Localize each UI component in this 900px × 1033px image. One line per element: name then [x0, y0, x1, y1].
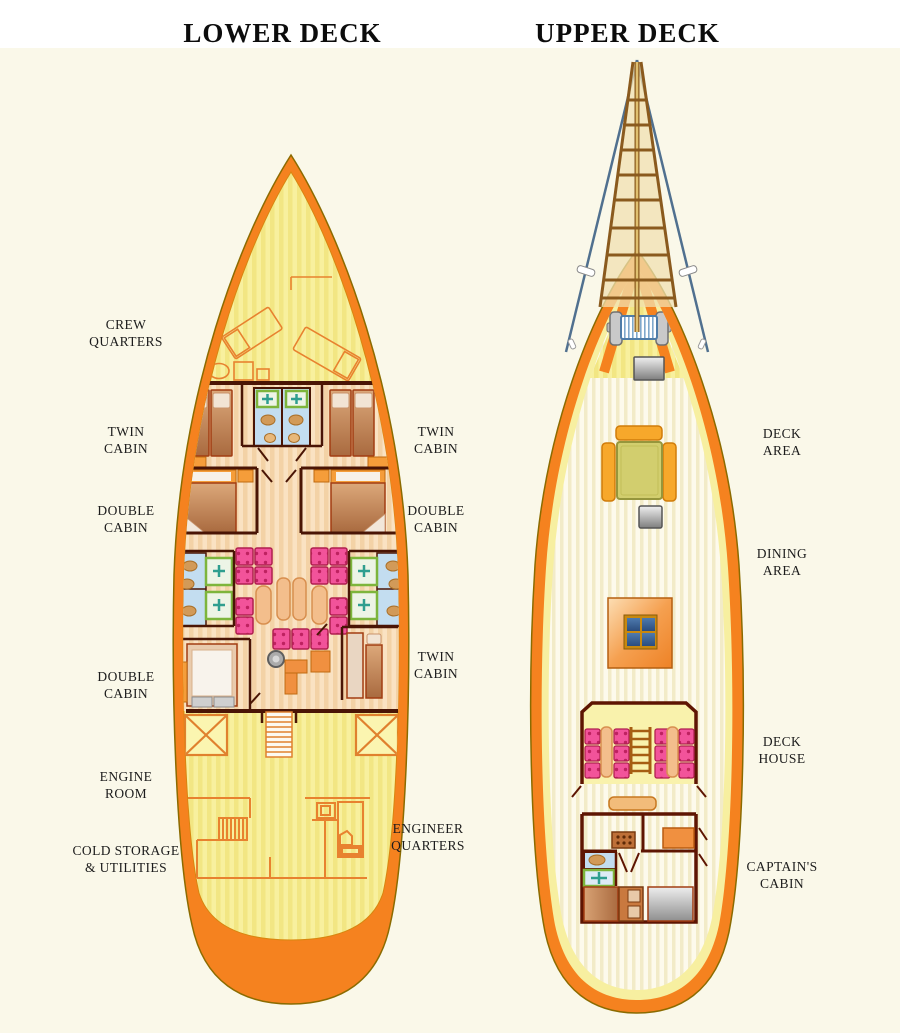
label-line: DECK	[702, 425, 862, 442]
label-line: ROOM	[51, 785, 201, 802]
title-upper-deck: UPPER DECK	[505, 18, 750, 49]
label-line: CREW	[51, 316, 201, 333]
skylight-window	[608, 598, 672, 668]
label-line: AREA	[702, 442, 862, 459]
lower-deck-plan	[170, 155, 415, 1004]
label-line: ENGINEER	[353, 820, 503, 837]
label-line: CABIN	[361, 519, 511, 536]
deck-house	[572, 703, 706, 797]
label-double-cabin-port: DOUBLE CABIN	[51, 502, 201, 536]
label-deck-house: DECK HOUSE	[702, 733, 862, 767]
label-dining-area: DINING AREA	[702, 545, 862, 579]
captain-bed	[584, 887, 618, 921]
label-line: CAPTAIN'S	[702, 858, 862, 875]
label-line: COLD STORAGE	[46, 842, 206, 859]
label-crew-quarters: CREW QUARTERS	[51, 316, 201, 350]
label-line: HOUSE	[702, 750, 862, 767]
label-deck-area: DECK AREA	[702, 425, 862, 459]
label-line: DINING	[702, 545, 862, 562]
label-line: DOUBLE	[361, 502, 511, 519]
bathroom-block	[254, 388, 310, 446]
label-double-cabin-aft-port: DOUBLE CABIN	[51, 668, 201, 702]
title-lower-deck: LOWER DECK	[160, 18, 405, 49]
label-line: DECK	[702, 733, 862, 750]
label-line: DOUBLE	[51, 668, 201, 685]
label-twin-cabin-aft-starboard: TWIN CABIN	[361, 648, 511, 682]
label-cold-storage: COLD STORAGE & UTILITIES	[46, 842, 206, 876]
deck-hatch	[634, 357, 664, 380]
galley-counter	[663, 828, 694, 848]
label-line: CABIN	[702, 875, 862, 892]
grill-box	[612, 832, 635, 848]
label-line: CABIN	[361, 665, 511, 682]
label-double-cabin-starboard: DOUBLE CABIN	[361, 502, 511, 536]
label-line: & UTILITIES	[46, 859, 206, 876]
label-line: CABIN	[51, 440, 201, 457]
label-twin-cabin-starboard: TWIN CABIN	[361, 423, 511, 457]
label-line: TWIN	[361, 648, 511, 665]
label-twin-cabin-port: TWIN CABIN	[51, 423, 201, 457]
label-line: CABIN	[51, 519, 201, 536]
label-engineer-quarters: ENGINEER QUARTERS	[353, 820, 503, 854]
label-line: TWIN	[51, 423, 201, 440]
sink	[589, 855, 605, 865]
label-engine-room: ENGINE ROOM	[51, 768, 201, 802]
engine-room-area	[185, 712, 398, 757]
bowsprit-ladder	[600, 62, 676, 332]
berth	[648, 887, 693, 921]
label-line: CABIN	[51, 685, 201, 702]
label-line: DOUBLE	[51, 502, 201, 519]
label-line: ENGINE	[51, 768, 201, 785]
label-captains-cabin: CAPTAIN'S CABIN	[702, 858, 862, 892]
label-line: CABIN	[361, 440, 511, 457]
label-line: TWIN	[361, 423, 511, 440]
label-line: QUARTERS	[51, 333, 201, 350]
label-line: QUARTERS	[353, 837, 503, 854]
deck-plan-page: LOWER DECK UPPER DECK CREW QUARTERS TWIN…	[0, 0, 900, 1033]
label-line: AREA	[702, 562, 862, 579]
